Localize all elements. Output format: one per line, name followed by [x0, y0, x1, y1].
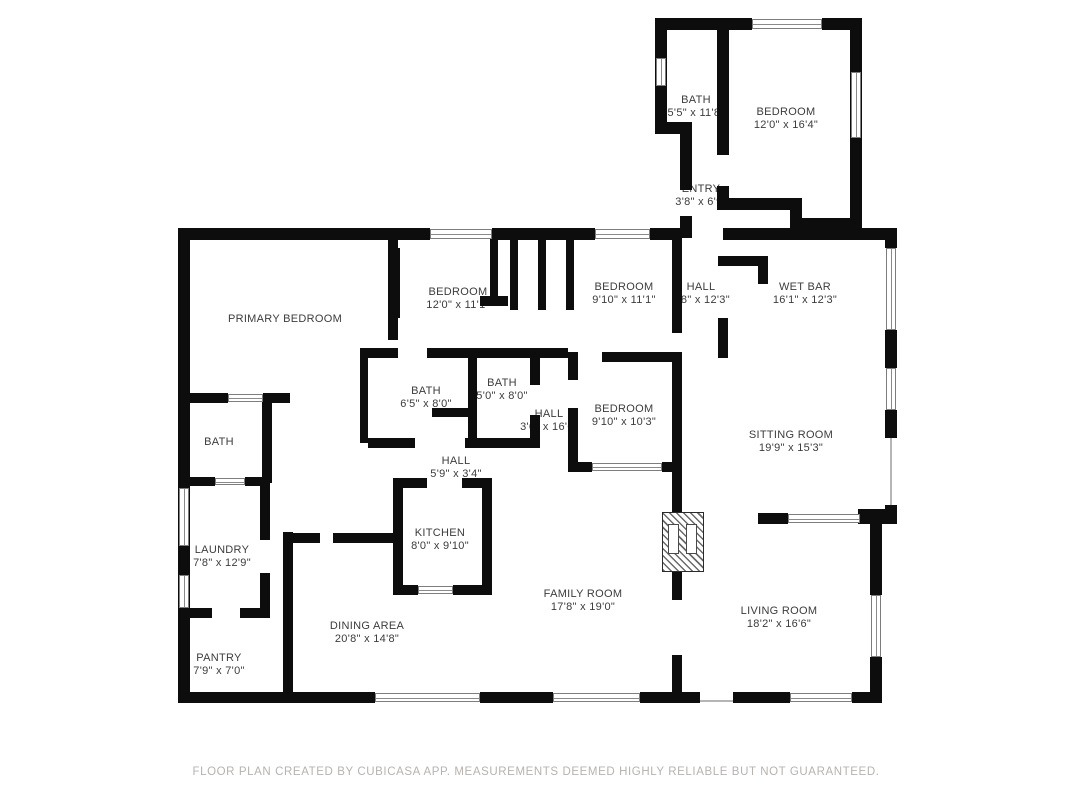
- wall: [672, 572, 682, 600]
- room-label-bath-upper: BATH 5'5" x 11'8": [668, 94, 725, 120]
- wall: [733, 692, 790, 703]
- wall: [672, 352, 682, 512]
- wall: [758, 256, 768, 284]
- window: [851, 72, 861, 138]
- window: [790, 693, 852, 702]
- wall: [178, 393, 228, 403]
- wall: [602, 352, 682, 362]
- wall: [885, 410, 897, 438]
- wall: [283, 533, 320, 543]
- wall: [680, 122, 692, 190]
- wall: [178, 228, 430, 240]
- room-label-primary-bedroom: PRIMARY BEDROOM: [228, 313, 342, 326]
- room-name: BATH: [668, 94, 725, 107]
- window: [886, 368, 896, 410]
- window: [179, 575, 189, 608]
- footer-disclaimer: FLOOR PLAN CREATED BY CUBICASA APP. MEAS…: [0, 766, 1072, 778]
- window: [886, 248, 896, 330]
- wall: [178, 228, 190, 703]
- wall: [510, 238, 518, 310]
- room-name: KITCHEN: [411, 527, 469, 540]
- wall: [468, 350, 477, 445]
- room-label-bedroom-3: BEDROOM 9'10" x 11'1": [592, 281, 655, 307]
- wall: [368, 438, 415, 448]
- window: [752, 19, 822, 29]
- fireplace-notch: [686, 524, 697, 554]
- room-name: LIVING ROOM: [741, 605, 818, 618]
- room-dims: 9'10" x 10'3": [592, 416, 656, 429]
- room-name: BATH: [476, 377, 527, 390]
- wall: [240, 608, 263, 618]
- room-name: DINING AREA: [330, 620, 404, 633]
- wall: [870, 520, 882, 595]
- room-dims: 7'8" x 12'9": [193, 557, 251, 570]
- room-label-pantry: PANTRY 7'9" x 7'0": [193, 652, 244, 678]
- wall: [190, 608, 212, 618]
- room-name: WET BAR: [773, 281, 837, 294]
- room-name: PRIMARY BEDROOM: [228, 313, 342, 326]
- room-dims: 9'10" x 11'1": [592, 294, 655, 307]
- room-name: FAMILY ROOM: [544, 588, 623, 601]
- wall: [530, 415, 540, 448]
- wall: [885, 228, 897, 248]
- wall: [530, 350, 540, 385]
- wall: [480, 692, 553, 703]
- window: [215, 478, 245, 485]
- wall: [640, 692, 700, 703]
- window: [656, 58, 666, 86]
- window: [228, 394, 263, 402]
- window: [592, 463, 662, 471]
- wall: [360, 355, 368, 443]
- room-dims: 12'0" x 16'4": [754, 119, 818, 132]
- room-name: BATH: [400, 385, 451, 398]
- wall: [427, 348, 568, 358]
- wall: [480, 296, 508, 306]
- room-dims: 5'0" x 8'0": [476, 390, 527, 403]
- wall: [718, 318, 728, 358]
- window: [375, 693, 480, 702]
- room-label-laundry: LAUNDRY 7'8" x 12'9": [193, 544, 251, 570]
- wall: [393, 585, 418, 595]
- wall: [538, 238, 546, 310]
- room-label-dining-area: DINING AREA 20'8" x 14'8": [330, 620, 404, 646]
- wall: [870, 657, 882, 703]
- wall: [885, 330, 897, 368]
- wall: [390, 248, 400, 318]
- fireplace: [662, 512, 704, 572]
- wall: [465, 438, 537, 448]
- wall: [393, 478, 403, 595]
- room-label-bath-left: BATH: [204, 436, 234, 449]
- wall: [568, 352, 578, 380]
- room-dims: 8'0" x 9'10": [411, 540, 469, 553]
- wall: [680, 216, 692, 238]
- room-name: LAUNDRY: [193, 544, 251, 557]
- room-name: PANTRY: [193, 652, 244, 665]
- window: [179, 488, 189, 546]
- wall: [758, 513, 788, 524]
- wall: [566, 238, 574, 310]
- wall: [283, 532, 293, 703]
- window: [871, 595, 881, 657]
- window: [553, 693, 640, 702]
- wall: [482, 478, 492, 590]
- room-dims: 5'5" x 11'8": [668, 107, 725, 120]
- room-name: BATH: [204, 436, 234, 449]
- room-name: BEDROOM: [754, 106, 818, 119]
- wall: [568, 462, 592, 472]
- wall: [432, 408, 468, 417]
- window: [430, 229, 492, 239]
- room-label-wet-bar: WET BAR 16'1" x 12'3": [773, 281, 837, 307]
- wall: [190, 477, 215, 486]
- fireplace-notch: [668, 524, 679, 554]
- room-dims: 20'8" x 14'8": [330, 633, 404, 646]
- room-dims: 18'2" x 16'6": [741, 618, 818, 631]
- room-name: HALL: [430, 455, 481, 468]
- wall: [655, 18, 752, 30]
- room-label-kitchen: KITCHEN 8'0" x 9'10": [411, 527, 469, 553]
- wall: [178, 692, 375, 703]
- wall: [260, 486, 270, 540]
- room-name: BEDROOM: [592, 281, 655, 294]
- wall: [262, 398, 272, 483]
- room-dims: 7'9" x 7'0": [193, 665, 244, 678]
- wall: [672, 238, 682, 333]
- wall: [245, 477, 270, 486]
- room-label-sitting-room: SITTING ROOM 19'9" x 15'3": [749, 429, 833, 455]
- opening-line: [700, 700, 733, 702]
- wall: [453, 585, 492, 595]
- window: [788, 514, 860, 523]
- floor-plan: BATH 5'5" x 11'8" BEDROOM 12'0" x 16'4" …: [0, 0, 1072, 804]
- room-label-bedroom-4: BEDROOM 9'10" x 10'3": [592, 403, 656, 429]
- wall: [490, 238, 498, 300]
- room-name: SITTING ROOM: [749, 429, 833, 442]
- room-label-bath-3: BATH 5'0" x 8'0": [476, 377, 527, 403]
- room-label-bedroom-upper: BEDROOM 12'0" x 16'4": [754, 106, 818, 132]
- room-label-living-room: LIVING ROOM 18'2" x 16'6": [741, 605, 818, 631]
- room-dims: 16'1" x 12'3": [773, 294, 837, 307]
- wall: [672, 655, 682, 703]
- room-dims: 19'9" x 15'3": [749, 442, 833, 455]
- wall: [723, 228, 895, 240]
- room-dims: 17'8" x 19'0": [544, 601, 623, 614]
- room-name: BEDROOM: [592, 403, 656, 416]
- wall: [333, 533, 400, 543]
- window: [595, 229, 650, 239]
- opening-line: [890, 438, 892, 505]
- wall: [717, 30, 729, 155]
- window: [418, 586, 453, 594]
- room-label-family-room: FAMILY ROOM 17'8" x 19'0": [544, 588, 623, 614]
